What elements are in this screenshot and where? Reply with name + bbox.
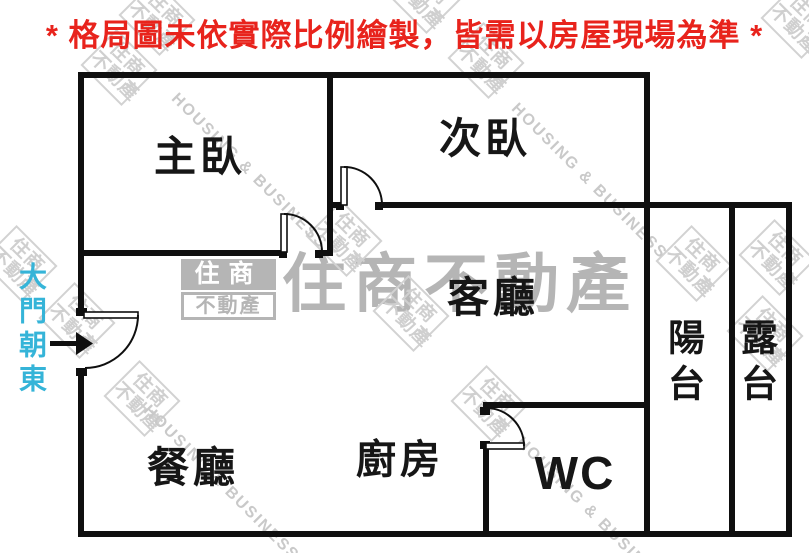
wall-wc-top — [483, 402, 650, 408]
wall-bottom — [78, 531, 792, 537]
entry-door-arc — [85, 315, 138, 368]
room-label-second-bedroom: 次臥 — [439, 118, 531, 160]
entry-arrow — [50, 332, 93, 355]
wc-door-leaf — [486, 443, 524, 449]
entry-door-leaf — [84, 312, 138, 318]
master-door-leaf — [281, 214, 287, 252]
entry-door-jamb — [76, 368, 87, 376]
wall-wc-left — [483, 443, 489, 537]
floor-plan-image: 住商不動產 住商 不動產 住商不動產 住商不動產 住商不動產 住商不動產 住商不… — [0, 0, 809, 553]
room-label-terrace: 露台 — [738, 318, 775, 410]
wall-left-lower — [78, 370, 84, 537]
wall-balcony-terrace-divider — [729, 202, 735, 537]
second-door-arc — [344, 167, 382, 205]
room-label-master-bedroom: 主臥 — [154, 136, 246, 178]
room-label-dining-room: 餐廳 — [147, 447, 239, 489]
entry-direction-note: 大門朝東 — [17, 262, 45, 398]
room-label-wc: WC — [535, 450, 616, 496]
room-label-kitchen: 廚房 — [356, 440, 444, 480]
wall-left-upper — [78, 72, 84, 313]
master-door-arc — [284, 214, 322, 252]
wall-bedroom-divider — [327, 72, 333, 256]
room-label-living-room: 客廳 — [447, 277, 539, 319]
wall-terrace-right — [786, 202, 792, 537]
wc-door-arc — [486, 408, 524, 446]
wall-unit-right — [644, 72, 650, 537]
second-door-leaf — [341, 167, 347, 205]
wall-master-bottom — [78, 250, 282, 256]
room-label-balcony: 陽台 — [665, 318, 702, 410]
wall-top — [78, 72, 650, 78]
disclaimer-text: * 格局圖未依實際比例繪製，皆需以房屋現場為準 * — [0, 10, 809, 55]
